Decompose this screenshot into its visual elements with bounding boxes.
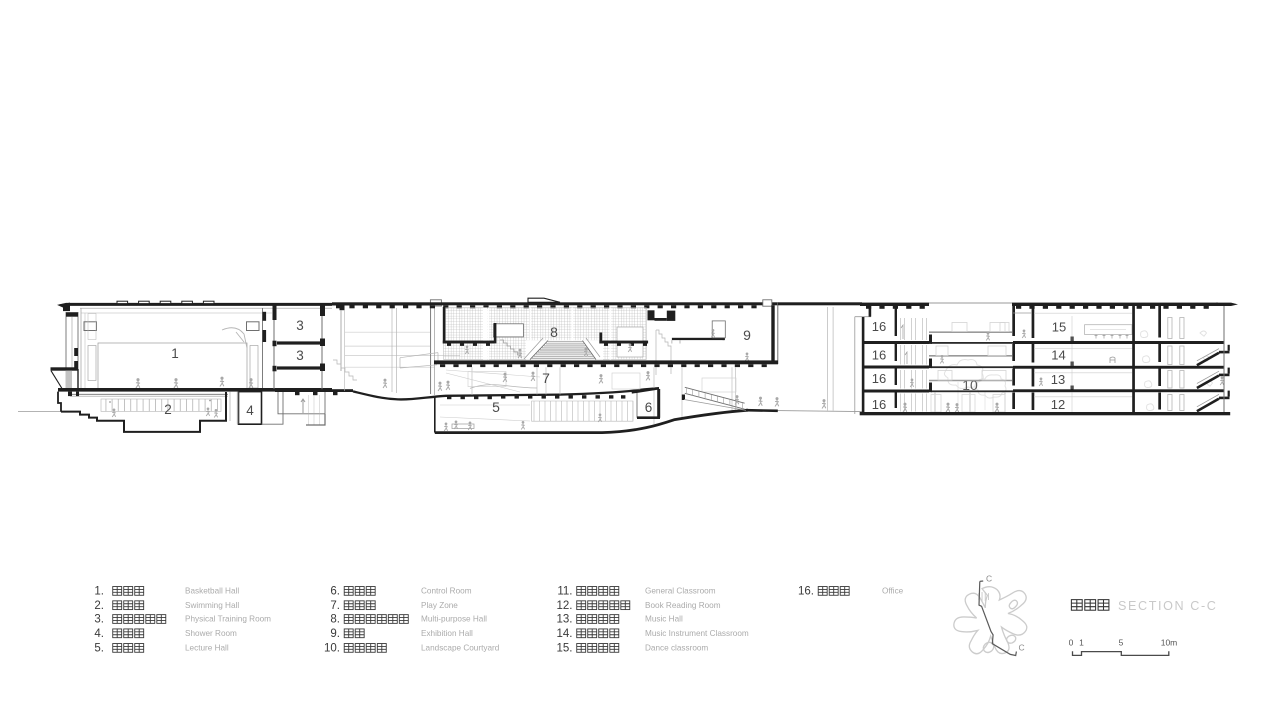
svg-text:Music Instrument Classroom: Music Instrument Classroom — [645, 629, 749, 638]
svg-text:15: 15 — [1052, 320, 1066, 335]
svg-text:9.: 9. — [330, 628, 340, 640]
svg-text:1: 1 — [1079, 638, 1084, 648]
svg-text:3.: 3. — [94, 614, 104, 626]
svg-text:6.: 6. — [330, 586, 340, 598]
svg-text:General Classroom: General Classroom — [645, 587, 716, 596]
svg-text:Shower Room: Shower Room — [185, 629, 237, 638]
svg-text:12: 12 — [1051, 397, 1065, 412]
svg-text:1.: 1. — [94, 586, 104, 598]
svg-text:13.: 13. — [557, 614, 573, 626]
svg-text:Play Zone: Play Zone — [421, 601, 458, 610]
svg-text:Lecture Hall: Lecture Hall — [185, 644, 229, 653]
svg-text:16: 16 — [872, 397, 886, 412]
svg-text:16: 16 — [872, 348, 886, 363]
svg-text:7.: 7. — [330, 600, 340, 612]
svg-text:13: 13 — [1051, 372, 1065, 387]
svg-text:Dance classroom: Dance classroom — [645, 644, 708, 653]
svg-text:12.: 12. — [557, 600, 573, 612]
svg-text:3: 3 — [296, 348, 304, 363]
svg-text:Landscape Courtyard: Landscape Courtyard — [421, 644, 500, 653]
svg-text:6: 6 — [645, 400, 653, 415]
svg-text:Basketball Hall: Basketball Hall — [185, 587, 239, 596]
svg-text:11.: 11. — [557, 586, 572, 598]
svg-text:Multi-purpose Hall: Multi-purpose Hall — [421, 615, 487, 624]
svg-text:8.: 8. — [330, 614, 340, 626]
svg-text:Office: Office — [882, 587, 904, 596]
svg-text:1: 1 — [171, 346, 179, 361]
svg-text:5: 5 — [492, 399, 500, 415]
svg-text:8: 8 — [550, 324, 558, 340]
svg-text:5.: 5. — [94, 643, 104, 655]
svg-text:9: 9 — [743, 327, 751, 343]
svg-text:5: 5 — [1119, 638, 1124, 648]
svg-text:10.: 10. — [324, 643, 340, 655]
svg-text:14: 14 — [1051, 348, 1065, 363]
svg-text:Control Room: Control Room — [421, 587, 472, 596]
svg-text:Book Reading Room: Book Reading Room — [645, 601, 721, 610]
svg-text:Physical Training Room: Physical Training Room — [185, 615, 271, 624]
svg-text:C: C — [1019, 643, 1025, 653]
svg-text:SECTION C-C: SECTION C-C — [1118, 599, 1217, 613]
svg-text:Exhibition Hall: Exhibition Hall — [421, 629, 473, 638]
svg-text:16.: 16. — [798, 586, 814, 598]
svg-text:2.: 2. — [94, 600, 104, 612]
svg-text:3: 3 — [296, 318, 304, 333]
svg-text:16: 16 — [872, 319, 886, 334]
svg-text:7: 7 — [542, 370, 550, 386]
svg-text:C: C — [986, 574, 992, 584]
svg-text:4: 4 — [246, 403, 254, 418]
svg-text:14.: 14. — [557, 628, 573, 640]
svg-text:2: 2 — [164, 402, 172, 417]
svg-text:Swimming Hall: Swimming Hall — [185, 601, 239, 610]
svg-text:15.: 15. — [557, 643, 573, 655]
svg-text:Music Hall: Music Hall — [645, 615, 683, 624]
svg-text:10m: 10m — [1161, 638, 1178, 648]
svg-text:4.: 4. — [94, 628, 104, 640]
svg-text:16: 16 — [872, 371, 886, 386]
svg-text:0: 0 — [1069, 638, 1074, 648]
